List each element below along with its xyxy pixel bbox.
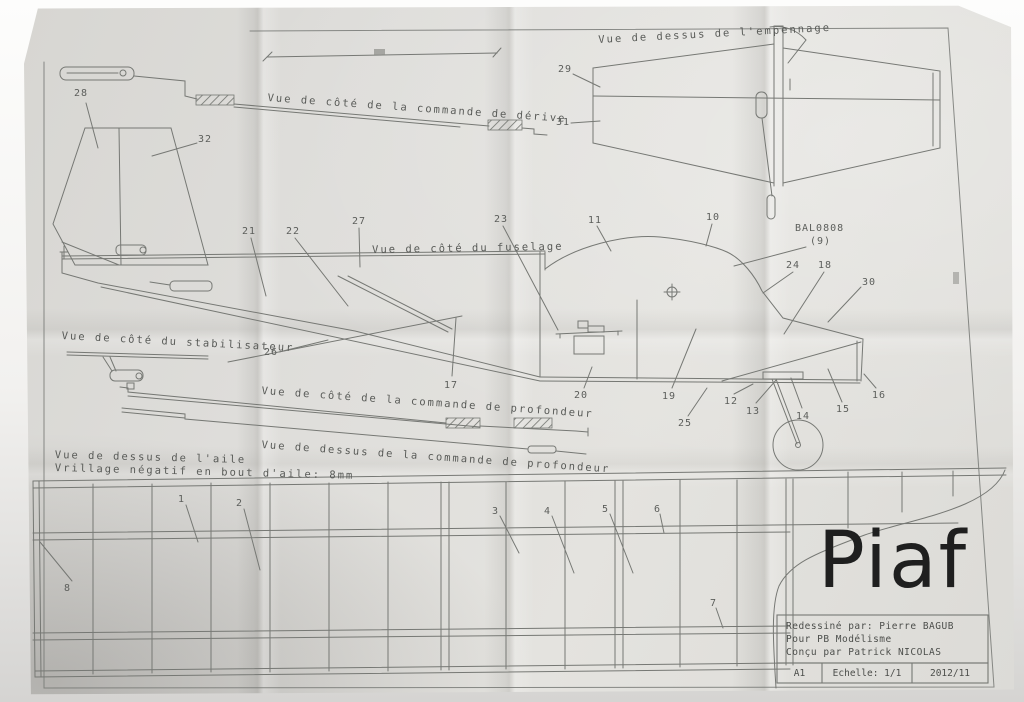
title-block-scale: Echelle: 1/1: [822, 668, 912, 679]
callout-6: 6: [654, 504, 661, 515]
callout-22: 22: [286, 226, 300, 237]
title-block-redrawn-by: Redessiné par: Pierre BAGUB: [786, 621, 954, 632]
callout-11: 11: [588, 215, 602, 226]
callout-3: 3: [492, 506, 499, 517]
title-block-for: Pour PB Modélisme: [786, 634, 892, 645]
callout-23: 23: [494, 214, 508, 225]
empennage-top-view-drawing: [571, 26, 959, 284]
callout-12: 12: [724, 396, 738, 407]
callout-31: 31: [556, 117, 570, 128]
fin-side-view-drawing: [53, 103, 208, 265]
callout-29: 29: [558, 64, 572, 75]
callout-1: 1: [178, 494, 185, 505]
callout-30: 30: [862, 277, 876, 288]
derive-linkage-drawing: [60, 48, 547, 135]
callout-20: 20: [574, 390, 588, 401]
annotation-balsa-ref: BAL0808: [795, 223, 844, 234]
stab-side-view-drawing: [67, 352, 208, 389]
callout-16: 16: [872, 390, 886, 401]
callout-27: 27: [352, 216, 366, 227]
callout-14: 14: [796, 411, 810, 422]
title-block-date: 2012/11: [912, 668, 988, 679]
callout-26: 26: [264, 347, 278, 358]
callout-24: 24: [786, 260, 800, 271]
callout-8: 8: [64, 583, 71, 594]
callout-21: 21: [242, 226, 256, 237]
callout-25: 25: [678, 418, 692, 429]
photo-of-model-plane-plan: { "titles": { "empennage_top": "Vue de d…: [0, 0, 1024, 702]
model-name: Piaf: [788, 516, 998, 606]
callout-5: 5: [602, 504, 609, 515]
annotation-balsa-qty: (9): [810, 236, 831, 247]
title-block-format: A1: [777, 668, 822, 679]
callout-7: 7: [710, 598, 717, 609]
callout-10: 10: [706, 212, 720, 223]
callout-18: 18: [818, 260, 832, 271]
callout-4: 4: [544, 506, 551, 517]
callout-32: 32: [198, 134, 212, 145]
landing-gear-drawing: [763, 372, 823, 470]
callout-28: 28: [74, 88, 88, 99]
title-block-designed-by: Conçu par Patrick NICOLAS: [786, 647, 942, 658]
callout-15: 15: [836, 404, 850, 415]
callout-19: 19: [662, 391, 676, 402]
callout-2: 2: [236, 498, 243, 509]
servo-drawing: [556, 321, 622, 354]
callout-17: 17: [444, 380, 458, 391]
callout-13: 13: [746, 406, 760, 417]
